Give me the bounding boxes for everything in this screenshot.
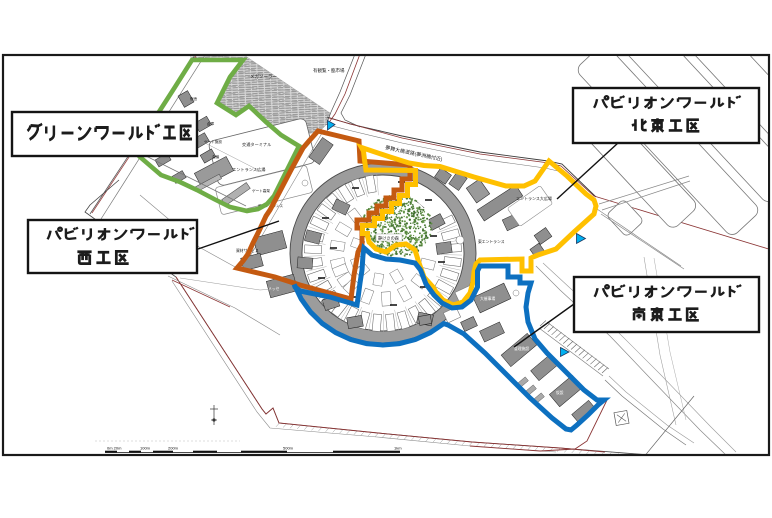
svg-text:1km: 1km [394, 446, 402, 451]
svg-text:管理施設: 管理施設 [514, 346, 529, 351]
svg-text:ゲート高架: ゲート高架 [252, 188, 270, 193]
svg-text:静けさの森: 静けさの森 [378, 235, 400, 242]
svg-text:有観覧・臨市場: 有観覧・臨市場 [313, 67, 345, 74]
svg-text:メッセ: メッセ [268, 286, 280, 291]
svg-text:エントランス広場: エントランス広場 [232, 166, 266, 173]
svg-text:エントランス大広場: エントランス大広場 [516, 195, 552, 201]
svg-text:500m: 500m [283, 446, 294, 451]
svg-text:0m 20m: 0m 20m [107, 446, 122, 451]
svg-text:200m: 200m [168, 446, 179, 451]
svg-text:ゲート施設: ゲート施設 [204, 139, 222, 144]
svg-text:大催事場: 大催事場 [480, 296, 495, 301]
svg-text:メガソーラー: メガソーラー [250, 73, 277, 80]
svg-text:交通ターミナル: 交通ターミナル [242, 141, 271, 148]
svg-text:100m: 100m [140, 446, 151, 451]
svg-text:倉庫: 倉庫 [207, 121, 215, 126]
svg-text:仮設: 仮設 [556, 390, 564, 395]
svg-text:会議: 会議 [212, 154, 220, 159]
svg-text:東エントランス: 東エントランス [478, 239, 505, 244]
svg-text:宿舎: 宿舎 [190, 96, 198, 101]
